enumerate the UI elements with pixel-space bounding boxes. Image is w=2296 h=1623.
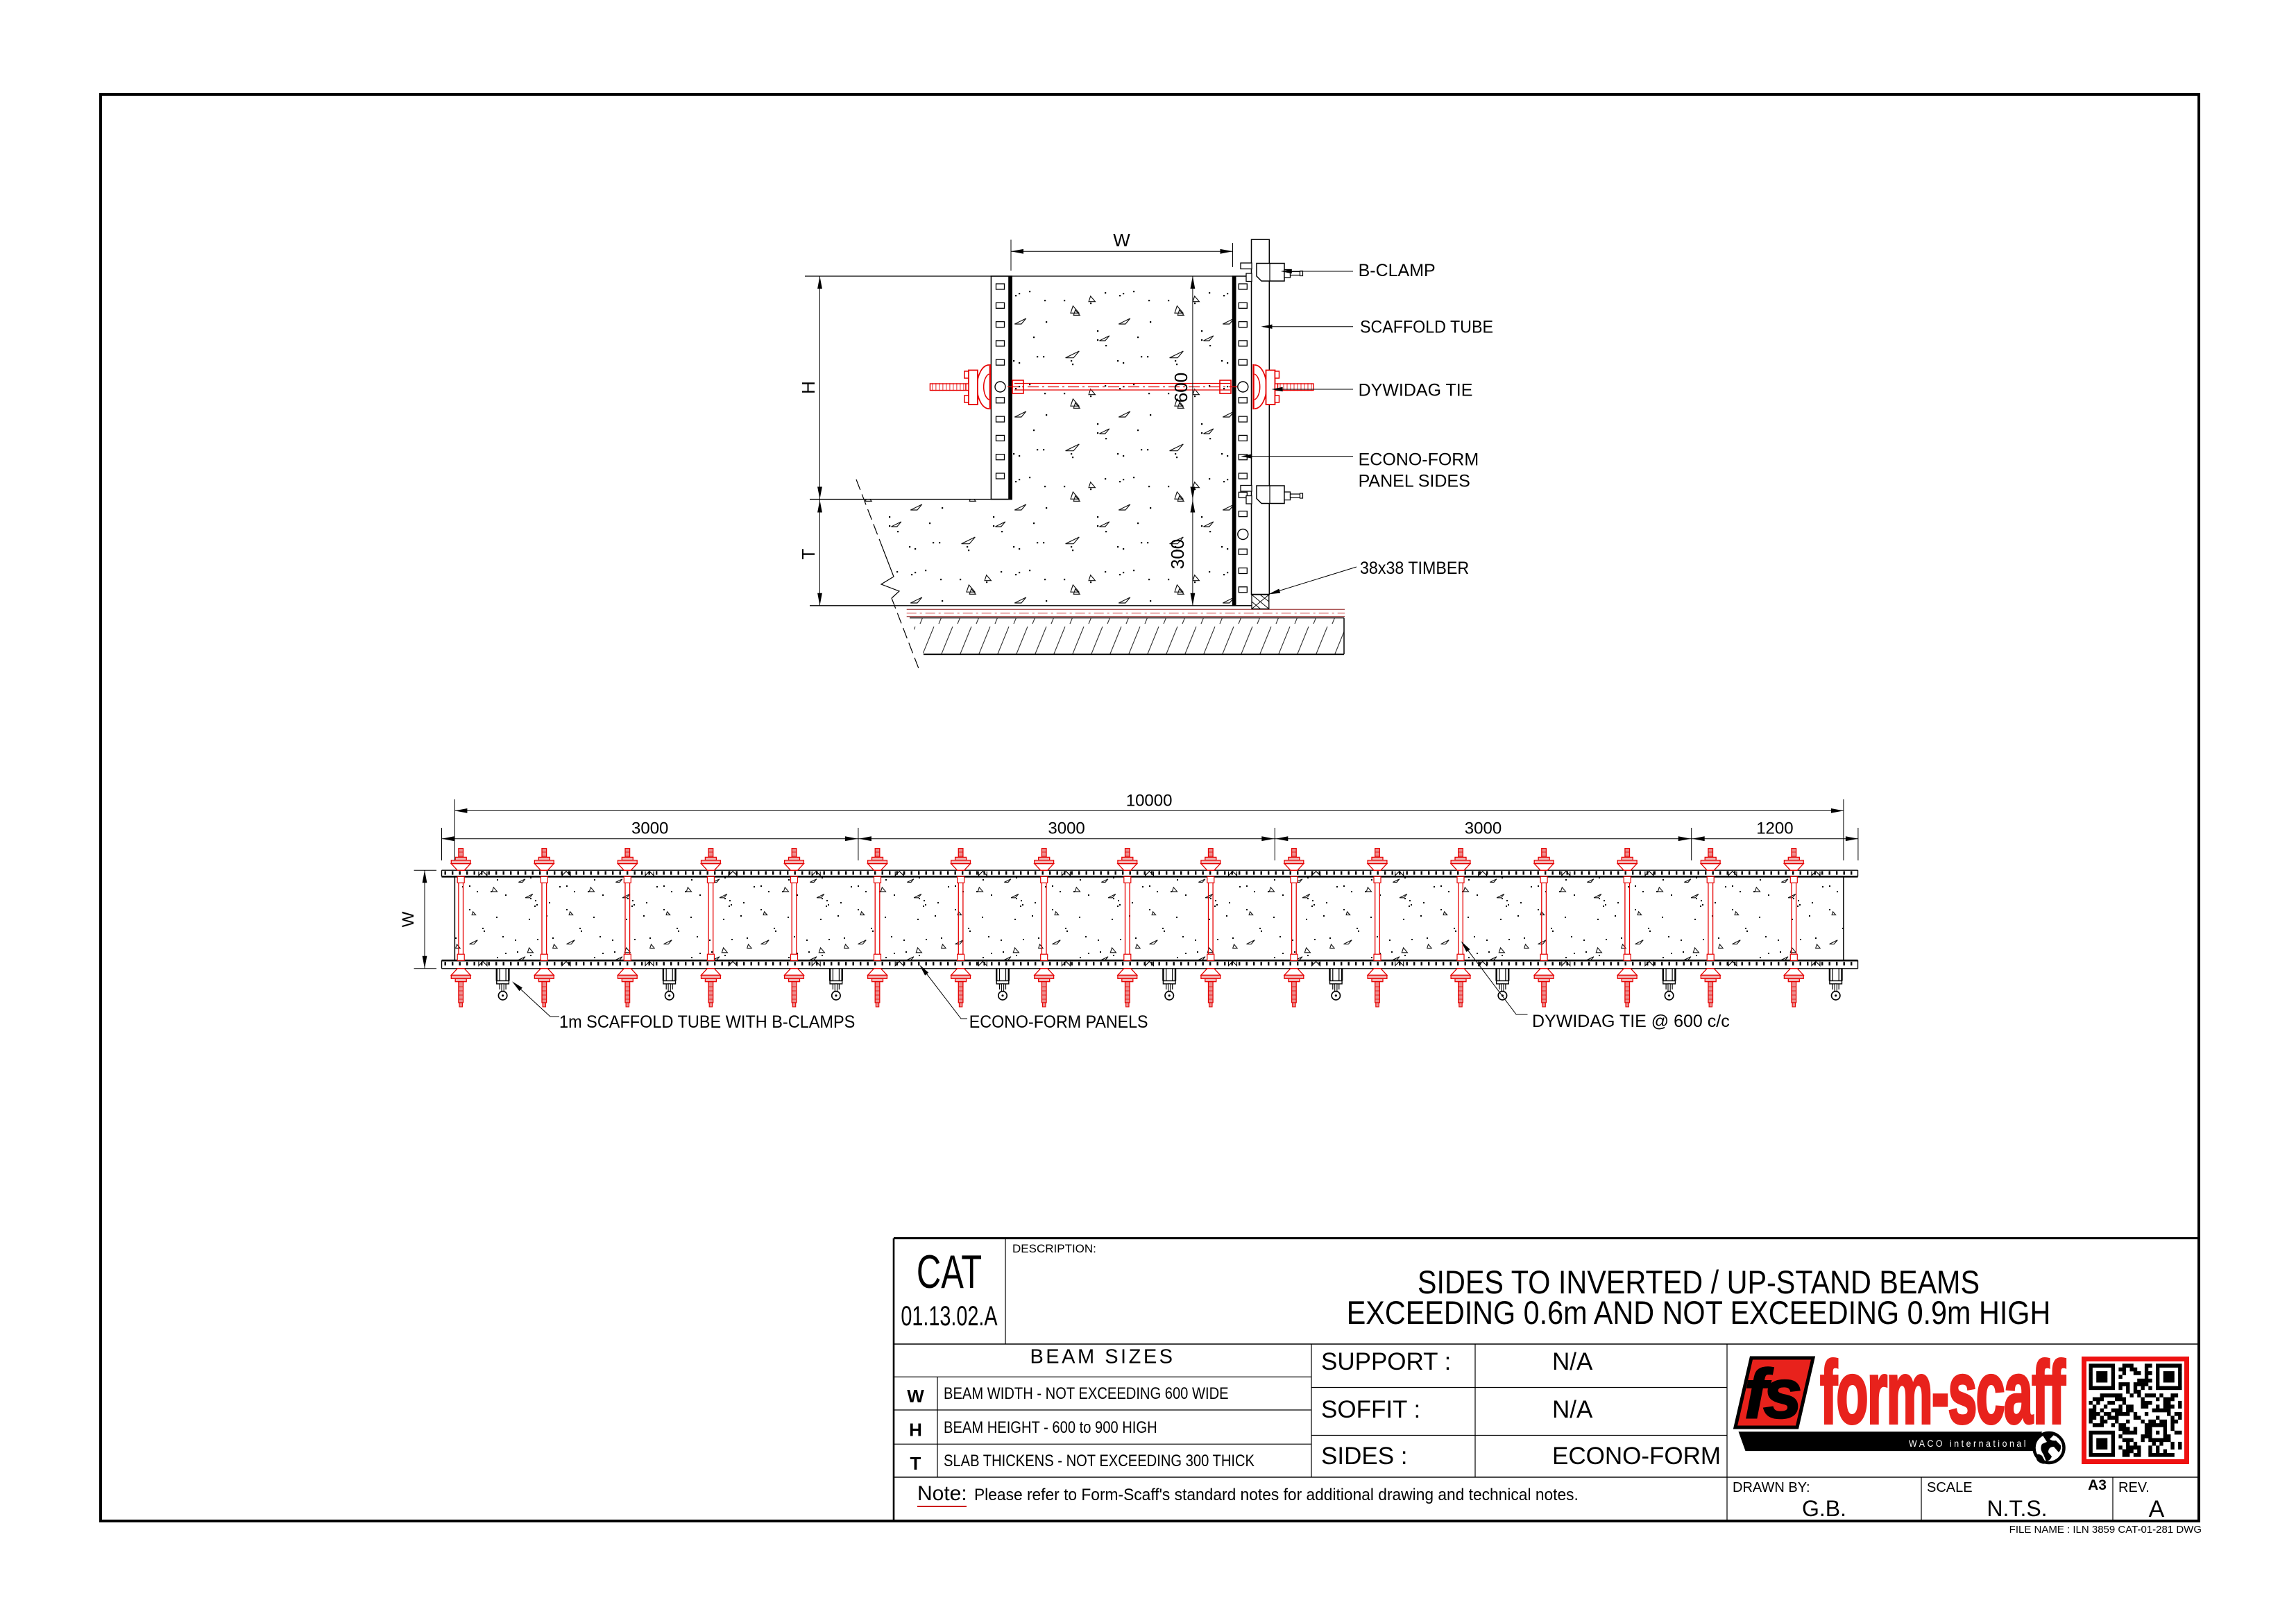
- svg-text:SCALE: SCALE: [1927, 1480, 1973, 1495]
- svg-text:SOFFIT :: SOFFIT :: [1321, 1396, 1420, 1423]
- svg-text:DYWIDAG TIE: DYWIDAG TIE: [1359, 381, 1473, 400]
- svg-text:W: W: [1113, 230, 1130, 250]
- svg-text:SIDES :: SIDES :: [1321, 1443, 1407, 1470]
- svg-text:3000: 3000: [631, 819, 668, 838]
- svg-text:CAT: CAT: [917, 1245, 982, 1298]
- svg-text:01.13.02.A: 01.13.02.A: [901, 1300, 998, 1332]
- svg-text:G.B.: G.B.: [1802, 1496, 1846, 1521]
- svg-text:A3: A3: [2088, 1477, 2107, 1493]
- svg-text:T: T: [798, 548, 819, 559]
- svg-text:H: H: [909, 1420, 922, 1441]
- svg-text:1200: 1200: [1756, 819, 1793, 838]
- svg-text:W: W: [907, 1386, 924, 1407]
- svg-text:300: 300: [1167, 539, 1188, 569]
- svg-text:T: T: [910, 1453, 921, 1474]
- svg-text:DRAWN BY:: DRAWN BY:: [1733, 1480, 1810, 1495]
- svg-text:ECONO-FORM PANELS: ECONO-FORM PANELS: [969, 1012, 1148, 1032]
- svg-text:H: H: [798, 381, 819, 394]
- svg-text:DESCRIPTION:: DESCRIPTION:: [1012, 1242, 1096, 1255]
- svg-text:FILE NAME : ILN 3859 CAT-01-28: FILE NAME : ILN 3859 CAT-01-281 DWG: [2009, 1524, 2202, 1536]
- svg-text:SUPPORT :: SUPPORT :: [1321, 1348, 1451, 1375]
- svg-text:ECONO-FORM: ECONO-FORM: [1552, 1443, 1721, 1470]
- svg-text:3000: 3000: [1465, 819, 1502, 838]
- svg-text:EXCEEDING 0.6m AND NOT EXCEEDI: EXCEEDING 0.6m AND NOT EXCEEDING 0.9m HI…: [1347, 1295, 2051, 1332]
- svg-text:ECONO-FORM: ECONO-FORM: [1359, 450, 1479, 470]
- svg-text:1m SCAFFOLD TUBE WITH B-CLAMPS: 1m SCAFFOLD TUBE WITH B-CLAMPS: [559, 1012, 855, 1032]
- svg-text:PANEL SIDES: PANEL SIDES: [1359, 472, 1470, 491]
- svg-text:WACO international: WACO international: [1909, 1438, 2028, 1449]
- svg-text:Note:: Note:: [917, 1482, 967, 1505]
- svg-text:38x38 TIMBER: 38x38 TIMBER: [1360, 559, 1469, 578]
- svg-text:N/A: N/A: [1552, 1348, 1593, 1375]
- svg-text:B-CLAMP: B-CLAMP: [1359, 261, 1436, 280]
- svg-text:N/A: N/A: [1552, 1396, 1593, 1423]
- svg-text:10000: 10000: [1126, 792, 1173, 810]
- svg-text:REV.: REV.: [2118, 1480, 2150, 1495]
- svg-text:W: W: [399, 911, 418, 927]
- svg-text:Please refer to Form-Scaff's s: Please refer to Form-Scaff's standard no…: [974, 1486, 1579, 1504]
- svg-text:BEAM SIZES: BEAM SIZES: [1030, 1346, 1175, 1368]
- svg-text:SCAFFOLD TUBE: SCAFFOLD TUBE: [1360, 318, 1493, 337]
- svg-text:BEAM HEIGHT - 600 to 900 HIGH: BEAM HEIGHT - 600 to 900 HIGH: [944, 1418, 1157, 1436]
- svg-text:N.T.S.: N.T.S.: [1987, 1496, 2047, 1521]
- svg-text:form-scaff: form-scaff: [1820, 1343, 2066, 1443]
- svg-text:A: A: [2149, 1496, 2165, 1522]
- svg-text:SLAB THICKENS - NOT EXCEEDING: SLAB THICKENS - NOT EXCEEDING 300 THICK: [944, 1451, 1255, 1470]
- svg-text:fs: fs: [1744, 1355, 1800, 1433]
- svg-text:600: 600: [1171, 373, 1191, 402]
- svg-text:BEAM WIDTH - NOT EXCEEDING 600: BEAM WIDTH - NOT EXCEEDING 600 WIDE: [944, 1384, 1229, 1402]
- svg-text:DYWIDAG TIE @ 600 c/c: DYWIDAG TIE @ 600 c/c: [1532, 1012, 1730, 1031]
- svg-text:3000: 3000: [1048, 819, 1085, 838]
